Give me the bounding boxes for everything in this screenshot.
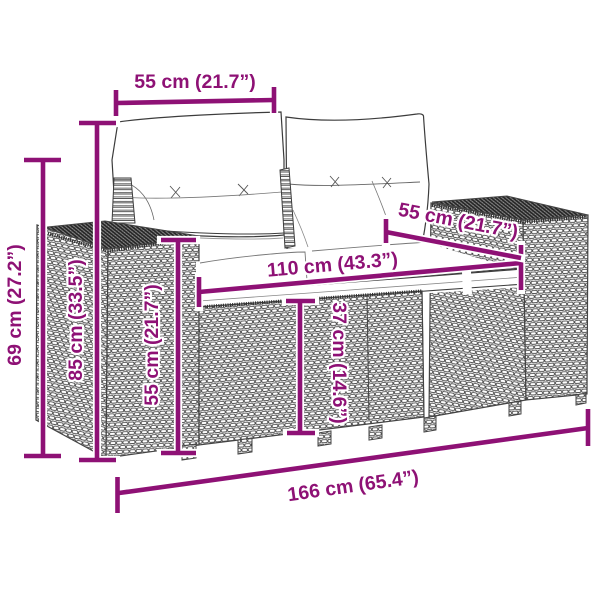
svg-text:37 cm (14.6”): 37 cm (14.6”) xyxy=(328,302,350,423)
svg-text:55 cm (21.7”): 55 cm (21.7”) xyxy=(134,71,255,93)
svg-text:69 cm (27.2”): 69 cm (27.2”) xyxy=(4,244,26,365)
svg-text:55 cm (21.7”): 55 cm (21.7”) xyxy=(141,284,163,405)
svg-text:85 cm (33.5”): 85 cm (33.5”) xyxy=(65,259,87,380)
